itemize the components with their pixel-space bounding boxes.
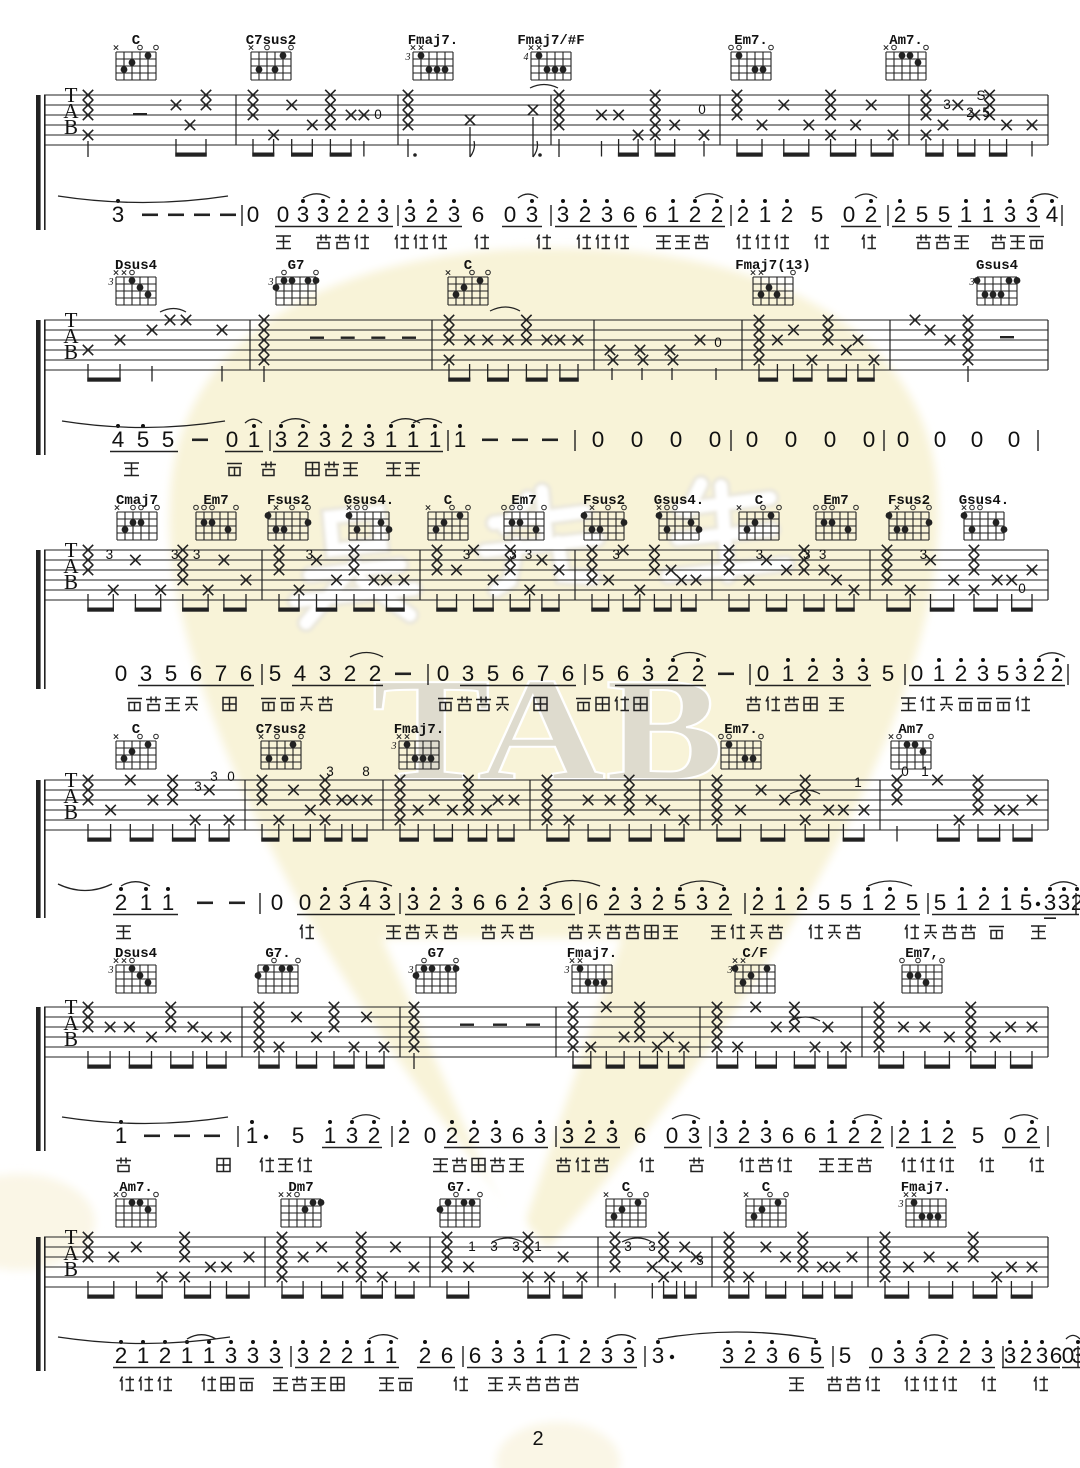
svg-text:1: 1 <box>407 427 420 452</box>
svg-text:Fmaj7.: Fmaj7. <box>394 722 444 738</box>
svg-text:1: 1 <box>826 1123 839 1148</box>
svg-text:0: 0 <box>247 202 260 227</box>
svg-text:1: 1 <box>454 427 467 452</box>
svg-text:5: 5 <box>811 202 824 227</box>
svg-text:1: 1 <box>385 1343 398 1368</box>
svg-text:2: 2 <box>368 1123 381 1148</box>
svg-text:3: 3 <box>112 202 125 227</box>
svg-text:5: 5 <box>487 661 500 686</box>
svg-text:4: 4 <box>359 890 372 915</box>
svg-text:B: B <box>64 570 78 594</box>
svg-text:3: 3 <box>512 1239 520 1254</box>
svg-text:3: 3 <box>642 661 655 686</box>
svg-text:2: 2 <box>341 1343 354 1368</box>
svg-text:0: 0 <box>631 427 644 452</box>
svg-text:0: 0 <box>299 890 312 915</box>
svg-text:6: 6 <box>562 661 575 686</box>
svg-text:1: 1 <box>557 1343 570 1368</box>
svg-text:3: 3 <box>363 427 376 452</box>
svg-text:Fsus2: Fsus2 <box>888 493 930 509</box>
svg-text:C: C <box>132 33 141 49</box>
svg-text:6: 6 <box>645 202 658 227</box>
svg-text:4: 4 <box>294 661 307 686</box>
svg-text:0: 0 <box>897 427 910 452</box>
svg-text:2: 2 <box>807 661 820 686</box>
svg-text:3: 3 <box>562 1123 575 1148</box>
svg-text:2: 2 <box>446 1123 459 1148</box>
svg-text:3: 3 <box>194 779 202 794</box>
svg-text:2: 2 <box>115 890 128 915</box>
svg-text:4: 4 <box>1046 202 1059 227</box>
svg-text:3: 3 <box>404 202 417 227</box>
svg-text:5: 5 <box>916 202 929 227</box>
svg-text:3: 3 <box>275 427 288 452</box>
svg-text:1: 1 <box>385 427 398 452</box>
svg-text:3: 3 <box>108 965 114 976</box>
svg-text:1: 1 <box>920 1123 933 1148</box>
svg-text:2: 2 <box>865 202 878 227</box>
svg-text:2: 2 <box>937 1343 950 1368</box>
svg-text:5: 5 <box>165 661 178 686</box>
svg-text:3: 3 <box>346 1123 359 1148</box>
svg-text:1: 1 <box>774 890 787 915</box>
svg-text:0: 0 <box>115 661 128 686</box>
svg-text:4: 4 <box>112 427 125 452</box>
svg-text:3: 3 <box>1072 1343 1080 1368</box>
svg-text:5: 5 <box>982 105 990 120</box>
svg-text:2: 2 <box>1033 661 1046 686</box>
svg-text:6: 6 <box>473 890 486 915</box>
svg-text:2: 2 <box>738 1123 751 1148</box>
svg-text:Cmaj7: Cmaj7 <box>116 493 158 509</box>
svg-text:3: 3 <box>601 1343 614 1368</box>
svg-text:1: 1 <box>759 202 772 227</box>
svg-text:6: 6 <box>469 1343 482 1368</box>
svg-text:2: 2 <box>319 890 332 915</box>
svg-text:Gsus4: Gsus4 <box>976 258 1018 274</box>
svg-text:2: 2 <box>369 661 382 686</box>
svg-text:3: 3 <box>766 1343 779 1368</box>
svg-text:3: 3 <box>405 52 411 63</box>
svg-text:3: 3 <box>727 965 733 976</box>
svg-text:3: 3 <box>193 547 201 562</box>
svg-text:6: 6 <box>561 890 574 915</box>
svg-text:2: 2 <box>848 1123 861 1148</box>
svg-text:1: 1 <box>203 1343 216 1368</box>
svg-text:3: 3 <box>108 277 114 288</box>
svg-text:2: 2 <box>692 661 705 686</box>
svg-text:3: 3 <box>803 547 811 562</box>
svg-text:2: 2 <box>517 890 530 915</box>
svg-text:3: 3 <box>756 547 764 562</box>
svg-text:6: 6 <box>586 890 599 915</box>
svg-text:0: 0 <box>871 1343 884 1368</box>
svg-text:4: 4 <box>524 52 529 63</box>
svg-text:3: 3 <box>513 1343 526 1368</box>
svg-text:5: 5 <box>840 890 853 915</box>
svg-text:1: 1 <box>534 1239 542 1254</box>
svg-text:2: 2 <box>297 427 310 452</box>
svg-text:C: C <box>622 1180 631 1196</box>
svg-text:3: 3 <box>898 1199 904 1210</box>
svg-text:2: 2 <box>894 202 907 227</box>
svg-text:5: 5 <box>882 661 895 686</box>
svg-text:3: 3 <box>1015 661 1028 686</box>
svg-text:0: 0 <box>824 427 837 452</box>
svg-text:3: 3 <box>981 1343 994 1368</box>
svg-text:3: 3 <box>857 661 870 686</box>
svg-text:6: 6 <box>782 1123 795 1148</box>
svg-text:Gsus4.: Gsus4. <box>959 493 1009 509</box>
svg-text:1: 1 <box>921 764 929 779</box>
svg-text:2: 2 <box>532 1428 543 1450</box>
svg-text:5: 5 <box>934 890 947 915</box>
svg-text:2: 2 <box>667 661 680 686</box>
svg-text:0: 0 <box>504 202 517 227</box>
svg-text:0: 0 <box>911 661 924 686</box>
svg-text:5: 5 <box>674 890 687 915</box>
svg-text:1: 1 <box>960 202 973 227</box>
svg-text:0: 0 <box>1008 427 1021 452</box>
svg-text:2: 2 <box>159 1343 172 1368</box>
svg-text:2: 2 <box>1026 1123 1039 1148</box>
svg-text:2: 2 <box>737 202 750 227</box>
svg-text:0: 0 <box>709 427 722 452</box>
svg-text:3: 3 <box>463 547 471 562</box>
svg-text:Fsus2: Fsus2 <box>267 493 309 509</box>
svg-text:Em7: Em7 <box>203 493 228 509</box>
svg-text:3: 3 <box>268 277 274 288</box>
svg-text:3: 3 <box>326 764 334 779</box>
svg-text:3: 3 <box>630 890 643 915</box>
svg-text:0: 0 <box>1018 581 1026 596</box>
svg-text:0: 0 <box>698 102 706 117</box>
svg-text:3: 3 <box>539 890 552 915</box>
svg-text:1: 1 <box>181 1343 194 1368</box>
svg-text:2: 2 <box>711 202 724 227</box>
svg-text:2: 2 <box>781 202 794 227</box>
svg-text:2: 2 <box>584 1123 597 1148</box>
svg-text:3: 3 <box>652 1343 665 1368</box>
svg-text:3: 3 <box>696 1253 704 1268</box>
svg-text:6: 6 <box>472 202 485 227</box>
svg-text:G7: G7 <box>288 258 305 274</box>
svg-text:3: 3 <box>339 890 352 915</box>
svg-text:3: 3 <box>247 1343 260 1368</box>
svg-text:3: 3 <box>1004 1343 1017 1368</box>
svg-text:5: 5 <box>906 890 919 915</box>
svg-text:0: 0 <box>437 661 450 686</box>
svg-text:5: 5 <box>292 1123 305 1148</box>
svg-text:G7.: G7. <box>265 946 290 962</box>
svg-text:5: 5 <box>972 1123 985 1148</box>
svg-text:2: 2 <box>1051 661 1064 686</box>
svg-text:Am7: Am7 <box>898 722 923 738</box>
svg-text:3: 3 <box>106 547 114 562</box>
svg-text:3: 3 <box>269 1343 282 1368</box>
svg-text:5: 5 <box>1020 890 1033 915</box>
svg-text:3: 3 <box>1058 890 1071 915</box>
svg-text:5: 5 <box>162 427 175 452</box>
svg-text:0: 0 <box>971 427 984 452</box>
svg-text:3: 3 <box>462 661 475 686</box>
svg-text:7: 7 <box>215 661 228 686</box>
svg-text:Fsus2: Fsus2 <box>583 493 625 509</box>
svg-text:0: 0 <box>746 427 759 452</box>
svg-text:3: 3 <box>490 1123 503 1148</box>
svg-text:6: 6 <box>240 661 253 686</box>
svg-text:3: 3 <box>819 547 827 562</box>
svg-text:B: B <box>64 1257 78 1281</box>
svg-text:2: 2 <box>319 1343 332 1368</box>
svg-text:3: 3 <box>920 547 928 562</box>
svg-text:3: 3 <box>140 661 153 686</box>
svg-text:0: 0 <box>226 427 239 452</box>
svg-text:1: 1 <box>140 890 153 915</box>
svg-text:B: B <box>64 115 78 139</box>
svg-text:3: 3 <box>317 202 330 227</box>
svg-text:0: 0 <box>1004 1123 1017 1148</box>
svg-text:2: 2 <box>955 661 968 686</box>
svg-text:Em7,: Em7, <box>905 946 939 962</box>
svg-text:0: 0 <box>714 335 722 350</box>
svg-text:1: 1 <box>162 890 175 915</box>
svg-text:0: 0 <box>785 427 798 452</box>
svg-text:2: 2 <box>579 202 592 227</box>
svg-text:3: 3 <box>716 1123 729 1148</box>
svg-text:3: 3 <box>832 661 845 686</box>
svg-text:2: 2 <box>689 202 702 227</box>
svg-text:2: 2 <box>426 202 439 227</box>
svg-text:5: 5 <box>269 661 282 686</box>
svg-text:3: 3 <box>451 890 464 915</box>
svg-text:B: B <box>64 340 78 364</box>
svg-text:3: 3 <box>557 202 570 227</box>
svg-text:2: 2 <box>337 202 350 227</box>
svg-text:3: 3 <box>408 965 414 976</box>
svg-text:3: 3 <box>696 890 709 915</box>
svg-text:3: 3 <box>391 741 397 752</box>
svg-text:1: 1 <box>363 1343 376 1368</box>
svg-text:3: 3 <box>534 1123 547 1148</box>
svg-text:1: 1 <box>468 1239 476 1254</box>
svg-text:0: 0 <box>277 202 290 227</box>
svg-text:6: 6 <box>512 661 525 686</box>
svg-text:2: 2 <box>978 890 991 915</box>
svg-text:Em7.: Em7. <box>724 722 758 738</box>
svg-text:3: 3 <box>722 1343 735 1368</box>
svg-text:2: 2 <box>1020 1343 1033 1368</box>
svg-text:3: 3 <box>225 1343 238 1368</box>
svg-text:Dsus4: Dsus4 <box>115 946 157 962</box>
svg-text:Dsus4: Dsus4 <box>115 258 157 274</box>
svg-text:6: 6 <box>495 890 508 915</box>
svg-text:8: 8 <box>362 764 370 779</box>
svg-text:Dm7: Dm7 <box>288 1180 313 1196</box>
svg-text:0: 0 <box>863 427 876 452</box>
svg-text:B: B <box>64 800 78 824</box>
svg-text:1: 1 <box>982 202 995 227</box>
svg-text:Em7: Em7 <box>823 493 848 509</box>
svg-text:6: 6 <box>634 1123 647 1148</box>
svg-text:2: 2 <box>652 890 665 915</box>
svg-text:6: 6 <box>623 202 636 227</box>
svg-text:2: 2 <box>898 1123 911 1148</box>
svg-text:0: 0 <box>227 769 235 784</box>
svg-text:1: 1 <box>782 661 795 686</box>
svg-text:3: 3 <box>1044 890 1057 915</box>
svg-text:Em7: Em7 <box>511 493 536 509</box>
svg-text:1: 1 <box>246 1123 259 1148</box>
svg-text:3: 3 <box>1004 202 1017 227</box>
svg-text:2: 2 <box>115 1343 128 1368</box>
svg-text:B: B <box>64 1027 78 1051</box>
svg-text:2: 2 <box>468 1123 481 1148</box>
svg-text:1: 1 <box>429 427 442 452</box>
svg-text:2: 2 <box>796 890 809 915</box>
svg-text:C: C <box>464 258 473 274</box>
svg-text:1: 1 <box>248 427 261 452</box>
svg-text:2: 2 <box>419 1343 432 1368</box>
svg-text:3: 3 <box>297 1343 310 1368</box>
svg-text:Am7.: Am7. <box>119 1180 153 1196</box>
svg-text:3: 3 <box>760 1123 773 1148</box>
svg-text:0: 0 <box>934 427 947 452</box>
svg-text:0: 0 <box>424 1123 437 1148</box>
svg-text:Gsus4.: Gsus4. <box>344 493 394 509</box>
svg-text:3: 3 <box>893 1343 906 1368</box>
svg-text:6: 6 <box>441 1343 454 1368</box>
svg-text:5: 5 <box>592 661 605 686</box>
svg-text:Fmaj7.: Fmaj7. <box>901 1180 951 1196</box>
svg-text:2: 2 <box>344 661 357 686</box>
svg-text:2: 2 <box>959 1343 972 1368</box>
svg-text:1: 1 <box>862 890 875 915</box>
svg-text:7: 7 <box>537 661 550 686</box>
svg-text:6: 6 <box>190 661 203 686</box>
svg-text:3: 3 <box>210 769 218 784</box>
svg-text:2: 2 <box>718 890 731 915</box>
svg-text:2: 2 <box>341 427 354 452</box>
svg-text:3: 3 <box>379 890 392 915</box>
svg-text:0: 0 <box>670 427 683 452</box>
svg-text:5: 5 <box>938 202 951 227</box>
svg-text:S: S <box>976 88 985 103</box>
svg-text:3: 3 <box>943 97 951 112</box>
svg-text:5: 5 <box>810 1343 823 1368</box>
svg-text:0: 0 <box>901 764 909 779</box>
svg-text:2: 2 <box>884 890 897 915</box>
svg-text:5: 5 <box>137 427 150 452</box>
svg-text:2: 2 <box>608 890 621 915</box>
svg-text:6: 6 <box>788 1343 801 1368</box>
svg-text:0: 0 <box>757 661 770 686</box>
svg-text:3: 3 <box>525 547 533 562</box>
svg-text:1: 1 <box>324 1123 337 1148</box>
svg-text:3: 3 <box>491 1343 504 1368</box>
svg-text:2: 2 <box>870 1123 883 1148</box>
svg-text:Am7.: Am7. <box>889 33 923 49</box>
svg-text:3: 3 <box>448 202 461 227</box>
svg-text:Gsus4.: Gsus4. <box>654 493 704 509</box>
svg-text:3: 3 <box>377 202 390 227</box>
svg-text:2: 2 <box>752 890 765 915</box>
svg-text:6: 6 <box>1050 1343 1063 1368</box>
svg-text:3: 3 <box>171 547 179 562</box>
svg-text:0: 0 <box>843 202 856 227</box>
svg-text:Fmaj7.: Fmaj7. <box>408 33 458 49</box>
svg-text:1: 1 <box>854 775 862 790</box>
svg-text:3: 3 <box>612 547 620 562</box>
svg-text:6: 6 <box>804 1123 817 1148</box>
svg-text:0: 0 <box>374 107 382 122</box>
svg-text:3: 3 <box>509 547 517 562</box>
svg-text:1: 1 <box>115 1123 128 1148</box>
svg-text:3: 3 <box>688 1123 701 1148</box>
svg-text:3: 3 <box>319 427 332 452</box>
svg-text:Fmaj7(13): Fmaj7(13) <box>735 258 811 274</box>
svg-text:3: 3 <box>1036 1343 1049 1368</box>
svg-text:3: 3 <box>306 547 314 562</box>
svg-text:3: 3 <box>969 277 975 288</box>
svg-text:3: 3 <box>297 202 310 227</box>
svg-text:3: 3 <box>319 661 332 686</box>
svg-text:3: 3 <box>601 202 614 227</box>
svg-text:3: 3 <box>564 965 570 976</box>
svg-text:G7: G7 <box>428 946 445 962</box>
svg-text:2: 2 <box>744 1343 757 1368</box>
svg-text:2: 2 <box>429 890 442 915</box>
svg-text:Em7.: Em7. <box>734 33 768 49</box>
svg-text:2: 2 <box>398 1123 411 1148</box>
svg-text:3: 3 <box>623 1343 636 1368</box>
svg-text:Fmaj7.: Fmaj7. <box>567 946 617 962</box>
svg-text:C/F: C/F <box>742 946 767 962</box>
svg-text:G7.: G7. <box>447 1180 472 1196</box>
svg-text:6: 6 <box>512 1123 525 1148</box>
svg-text:0: 0 <box>666 1123 679 1148</box>
svg-text:1: 1 <box>1000 890 1013 915</box>
svg-text:3: 3 <box>407 890 420 915</box>
svg-text:6: 6 <box>617 661 630 686</box>
svg-text:5: 5 <box>997 661 1010 686</box>
svg-text:3: 3 <box>606 1123 619 1148</box>
svg-text:5: 5 <box>839 1343 852 1368</box>
svg-text:2: 2 <box>357 202 370 227</box>
svg-text:1: 1 <box>667 202 680 227</box>
svg-text:0: 0 <box>271 890 284 915</box>
svg-text:2: 2 <box>966 105 974 120</box>
svg-text:C: C <box>444 493 453 509</box>
svg-text:3: 3 <box>915 1343 928 1368</box>
svg-text:1: 1 <box>933 661 946 686</box>
svg-text:C: C <box>132 722 141 738</box>
svg-text:2: 2 <box>579 1343 592 1368</box>
svg-text:C: C <box>762 1180 771 1196</box>
svg-text:1: 1 <box>535 1343 548 1368</box>
svg-text:0: 0 <box>592 427 605 452</box>
svg-text:3: 3 <box>977 661 990 686</box>
svg-text:3: 3 <box>1026 202 1039 227</box>
svg-text:1: 1 <box>137 1343 150 1368</box>
svg-text:1: 1 <box>956 890 969 915</box>
svg-text:C: C <box>755 493 764 509</box>
svg-text:3: 3 <box>526 202 539 227</box>
svg-text:2: 2 <box>942 1123 955 1148</box>
svg-text:5: 5 <box>818 890 831 915</box>
svg-text:3: 3 <box>624 1239 632 1254</box>
svg-text:Fmaj7/#F: Fmaj7/#F <box>517 33 584 49</box>
